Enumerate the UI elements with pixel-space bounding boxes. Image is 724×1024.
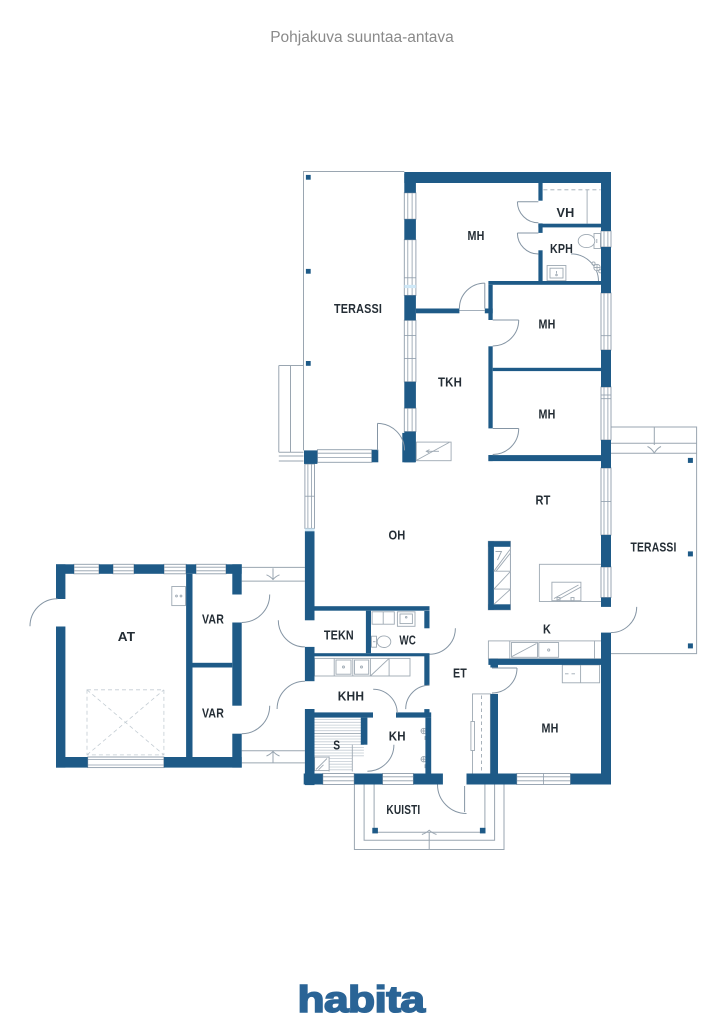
- svg-text:VAR: VAR: [202, 612, 224, 627]
- svg-text:KPH: KPH: [550, 241, 573, 256]
- svg-text:AT: AT: [118, 629, 136, 644]
- svg-text:habita: habita: [298, 979, 426, 1020]
- svg-text:TKH: TKH: [438, 375, 462, 390]
- svg-text:MH: MH: [539, 317, 556, 332]
- svg-text:MH: MH: [468, 228, 485, 243]
- svg-text:MH: MH: [542, 721, 559, 736]
- svg-text:S: S: [333, 738, 340, 753]
- svg-text:WC: WC: [399, 633, 416, 648]
- svg-text:Pohjakuva suuntaa-antava: Pohjakuva suuntaa-antava: [270, 29, 454, 46]
- svg-text:ET: ET: [453, 666, 467, 681]
- svg-text:KHH: KHH: [338, 688, 365, 703]
- svg-text:K: K: [543, 622, 551, 637]
- svg-text:TERASSI: TERASSI: [334, 301, 382, 316]
- svg-text:MH: MH: [539, 407, 556, 422]
- svg-text:VAR: VAR: [202, 705, 224, 720]
- svg-text:VH: VH: [557, 205, 575, 220]
- svg-text:KUISTI: KUISTI: [386, 802, 420, 817]
- svg-text:TEKN: TEKN: [324, 628, 354, 643]
- svg-text:RT: RT: [536, 493, 551, 508]
- svg-text:KH: KH: [389, 728, 406, 743]
- svg-text:TERASSI: TERASSI: [631, 540, 677, 555]
- svg-text:OH: OH: [389, 528, 406, 543]
